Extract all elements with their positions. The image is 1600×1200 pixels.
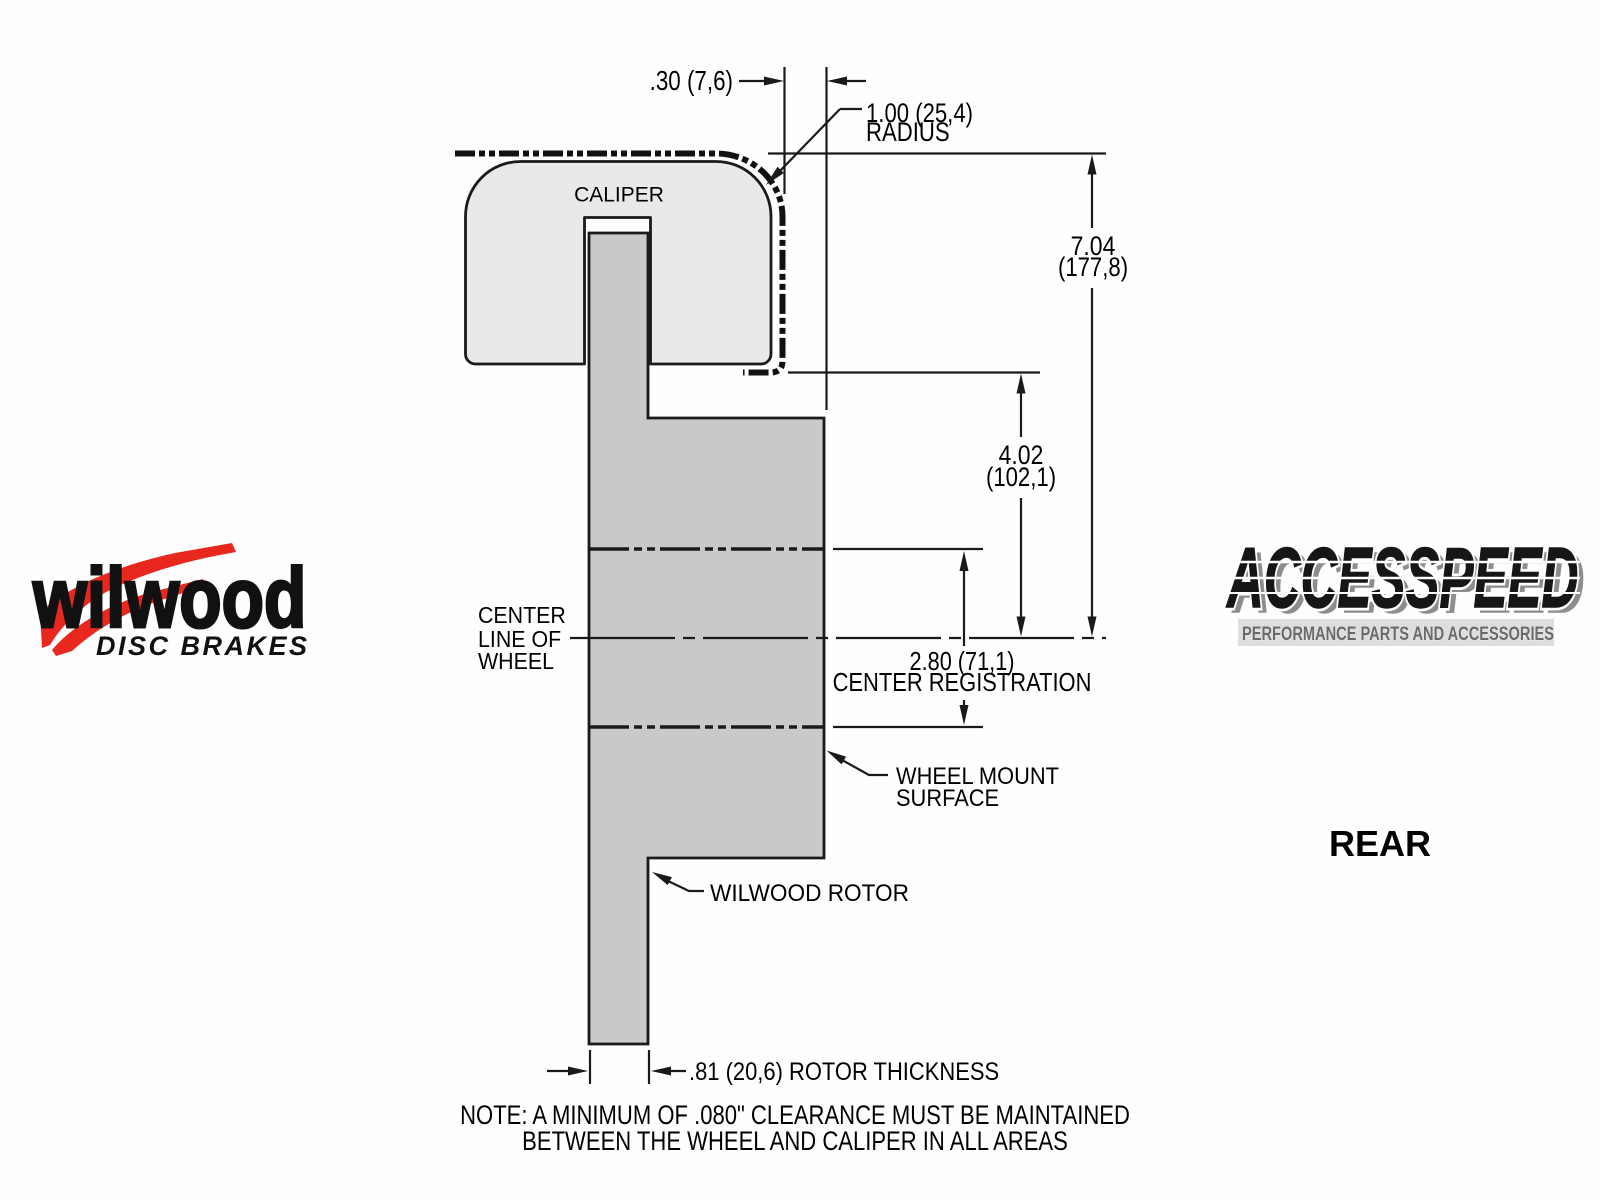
svg-text:SURFACE: SURFACE xyxy=(896,784,999,811)
svg-text:WILWOOD ROTOR: WILWOOD ROTOR xyxy=(710,879,909,906)
svg-text:CENTER: CENTER xyxy=(478,602,566,628)
svg-text:WHEEL: WHEEL xyxy=(478,648,554,674)
svg-text:(177,8): (177,8) xyxy=(1058,253,1128,283)
svg-text:(102,1): (102,1) xyxy=(986,463,1056,493)
svg-text:CENTER REGISTRATION: CENTER REGISTRATION xyxy=(833,668,1092,697)
svg-text:REAR: REAR xyxy=(1329,823,1431,864)
svg-text:PERFORMANCE PARTS AND ACCESSOR: PERFORMANCE PARTS AND ACCESSORIES xyxy=(1242,622,1554,645)
svg-text:.30 (7,6): .30 (7,6) xyxy=(650,66,733,97)
svg-text:RADIUS: RADIUS xyxy=(866,118,950,148)
svg-text:BETWEEN THE WHEEL AND CALIPER: BETWEEN THE WHEEL AND CALIPER IN ALL ARE… xyxy=(522,1127,1068,1157)
svg-text:CALIPER: CALIPER xyxy=(574,184,664,207)
svg-text:.81 (20,6) ROTOR THICKNESS: .81 (20,6) ROTOR THICKNESS xyxy=(689,1058,999,1086)
